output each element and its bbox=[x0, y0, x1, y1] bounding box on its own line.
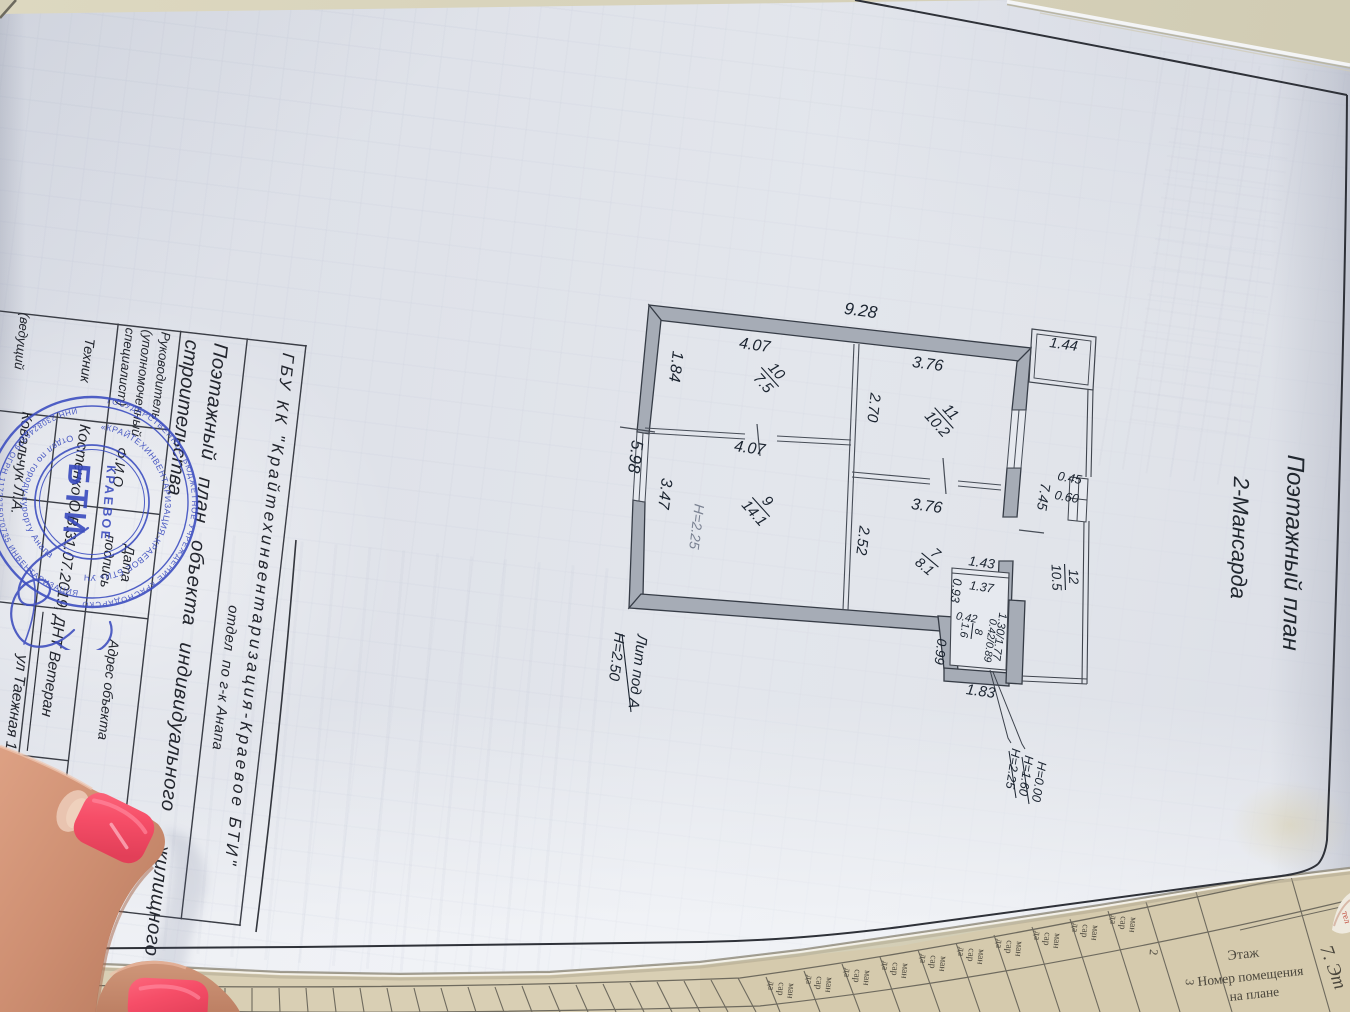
svg-text:2.70: 2.70 bbox=[863, 391, 884, 424]
svg-text:БТИ: БТИ bbox=[56, 462, 97, 540]
svg-text:4.07: 4.07 bbox=[738, 335, 772, 356]
svg-text:10.5: 10.5 bbox=[1049, 564, 1065, 591]
svg-text:7.45: 7.45 bbox=[1034, 482, 1054, 512]
svg-text:Н=2.50: Н=2.50 bbox=[605, 631, 628, 682]
svg-text:1.6: 1.6 bbox=[957, 622, 971, 640]
svg-text:1.43: 1.43 bbox=[968, 553, 997, 572]
svg-text:0.45: 0.45 bbox=[1056, 469, 1082, 487]
svg-text:Лит под А: Лит под А bbox=[624, 633, 650, 710]
svg-text:9.28: 9.28 bbox=[843, 299, 879, 322]
svg-text:5.98: 5.98 bbox=[624, 439, 647, 475]
svg-text:0.99: 0.99 bbox=[931, 638, 949, 666]
svg-text:3.47: 3.47 bbox=[654, 477, 675, 511]
svg-text:0.93: 0.93 bbox=[948, 578, 965, 604]
svg-text:12: 12 bbox=[1066, 569, 1082, 585]
svg-text:3.76: 3.76 bbox=[910, 496, 943, 517]
svg-text:КРАЕВОЕ: КРАЕВОЕ bbox=[98, 465, 119, 542]
svg-text:3.76: 3.76 bbox=[911, 354, 944, 375]
svg-text:2.52: 2.52 bbox=[852, 524, 873, 557]
svg-text:1.84: 1.84 bbox=[665, 350, 686, 383]
svg-text:1.83: 1.83 bbox=[965, 681, 997, 702]
svg-text:1.44: 1.44 bbox=[1048, 335, 1078, 355]
svg-text:4.07: 4.07 bbox=[733, 438, 767, 459]
svg-text:0.60: 0.60 bbox=[1053, 488, 1079, 506]
svg-text:Н=2.25: Н=2.25 bbox=[686, 503, 707, 550]
